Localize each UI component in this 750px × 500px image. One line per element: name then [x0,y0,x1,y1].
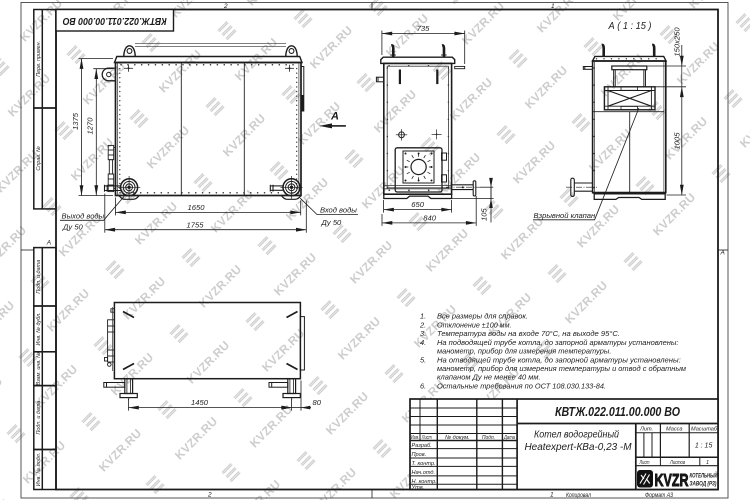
svg-text:Котел водогрейный: Котел водогрейный [534,430,619,441]
svg-text:Масштаб: Масштаб [691,427,718,433]
svg-text:1005: 1005 [673,132,682,150]
svg-text:1 : 15: 1 : 15 [695,443,713,450]
svg-text:А ( 1 : 15 ): А ( 1 : 15 ) [608,20,652,32]
svg-text:5.: 5. [420,356,426,365]
svg-text:80: 80 [313,398,322,407]
svg-text:4.: 4. [420,338,426,347]
svg-text:Копировал: Копировал [566,492,591,499]
svg-text:3.: 3. [420,329,426,338]
svg-text:Температура воды на входе 70°С: Температура воды на входе 70°С, на выход… [437,329,620,338]
svg-text:1: 1 [550,492,554,499]
svg-text:ЗАВОД (РЗ): ЗАВОД (РЗ) [690,482,717,488]
svg-text:1755: 1755 [187,220,205,229]
svg-text:1: 1 [706,460,709,466]
svg-text:1: 1 [551,3,555,10]
svg-text:Перв. примен.: Перв. примен. [36,41,42,77]
svg-text:Разраб.: Разраб. [412,443,432,449]
svg-text:клапаном Ду не менее 40 мм.: клапаном Ду не менее 40 мм. [437,373,541,382]
svg-text:1270: 1270 [86,117,95,135]
svg-text:Ду 50: Ду 50 [62,223,84,232]
svg-text:Формат А3: Формат А3 [645,492,673,499]
svg-text:Утв.: Утв. [411,485,425,491]
svg-text:Инв. № дубл.: Инв. № дубл. [36,312,42,345]
svg-text:KVZR: KVZR [655,470,689,490]
svg-text:Heatexpert-КВа-0,23 -М: Heatexpert-КВа-0,23 -М [525,442,633,453]
svg-text:2: 2 [207,492,212,499]
svg-text:А: А [720,250,725,257]
svg-text:№ докум.: № докум. [445,435,470,441]
svg-text:Лит.: Лит. [639,427,653,433]
svg-text:1450: 1450 [191,398,209,407]
svg-text:2: 2 [223,3,228,10]
svg-text:Т. контр.: Т. контр. [412,461,436,467]
svg-text:КВТЖ.022.011.00.000 ВО: КВТЖ.022.011.00.000 ВО [555,405,680,419]
svg-text:манометр, прибор для измерения: манометр, прибор для измерения температу… [437,346,611,355]
svg-text:А: А [46,240,51,247]
svg-text:КОТЕЛЬНЫЙ: КОТЕЛЬНЫЙ [690,472,718,480]
svg-text:Взам. инв. №: Взам. инв. № [36,352,42,386]
svg-text:Пров.: Пров. [412,452,427,458]
svg-text:1375: 1375 [71,112,80,130]
svg-text:А: А [330,111,339,123]
svg-text:6.: 6. [420,381,426,390]
svg-text:Масса: Масса [666,427,683,433]
svg-text:Подп.: Подп. [482,435,495,441]
svg-text:Изм.: Изм. [411,435,420,441]
svg-text:650: 650 [411,200,424,209]
svg-text:КВТЖ.022.011.00.000 ВО: КВТЖ.022.011.00.000 ВО [63,15,167,26]
svg-text:Остальные требования по ОСТ 10: Остальные требования по ОСТ 108.030.133-… [437,381,606,390]
svg-text:1650: 1650 [188,203,206,212]
svg-text:Лист: Лист [421,435,432,441]
svg-text:105: 105 [479,208,488,221]
svg-text:Подп. и дата: Подп. и дата [36,401,42,435]
svg-text:Справ. №: Справ. № [36,146,42,171]
svg-text:Нач.отд.: Нач.отд. [412,470,436,476]
svg-text:Вход воды: Вход воды [320,205,357,214]
svg-text:150х250: 150х250 [673,27,682,57]
svg-text:Дата: Дата [503,435,515,441]
svg-text:Взрывной клапан: Взрывной клапан [534,211,597,220]
svg-text:Подп. и дата: Подп. и дата [36,260,42,294]
svg-text:735: 735 [417,24,430,33]
svg-text:Лист: Лист [639,460,650,466]
svg-text:840: 840 [423,214,436,223]
svg-text:Ду 50: Ду 50 [321,218,343,227]
svg-text:Листов: Листов [669,460,685,466]
svg-text:Выход воды: Выход воды [62,211,105,220]
svg-text:Инв. № подл.: Инв. № подл. [36,453,42,486]
